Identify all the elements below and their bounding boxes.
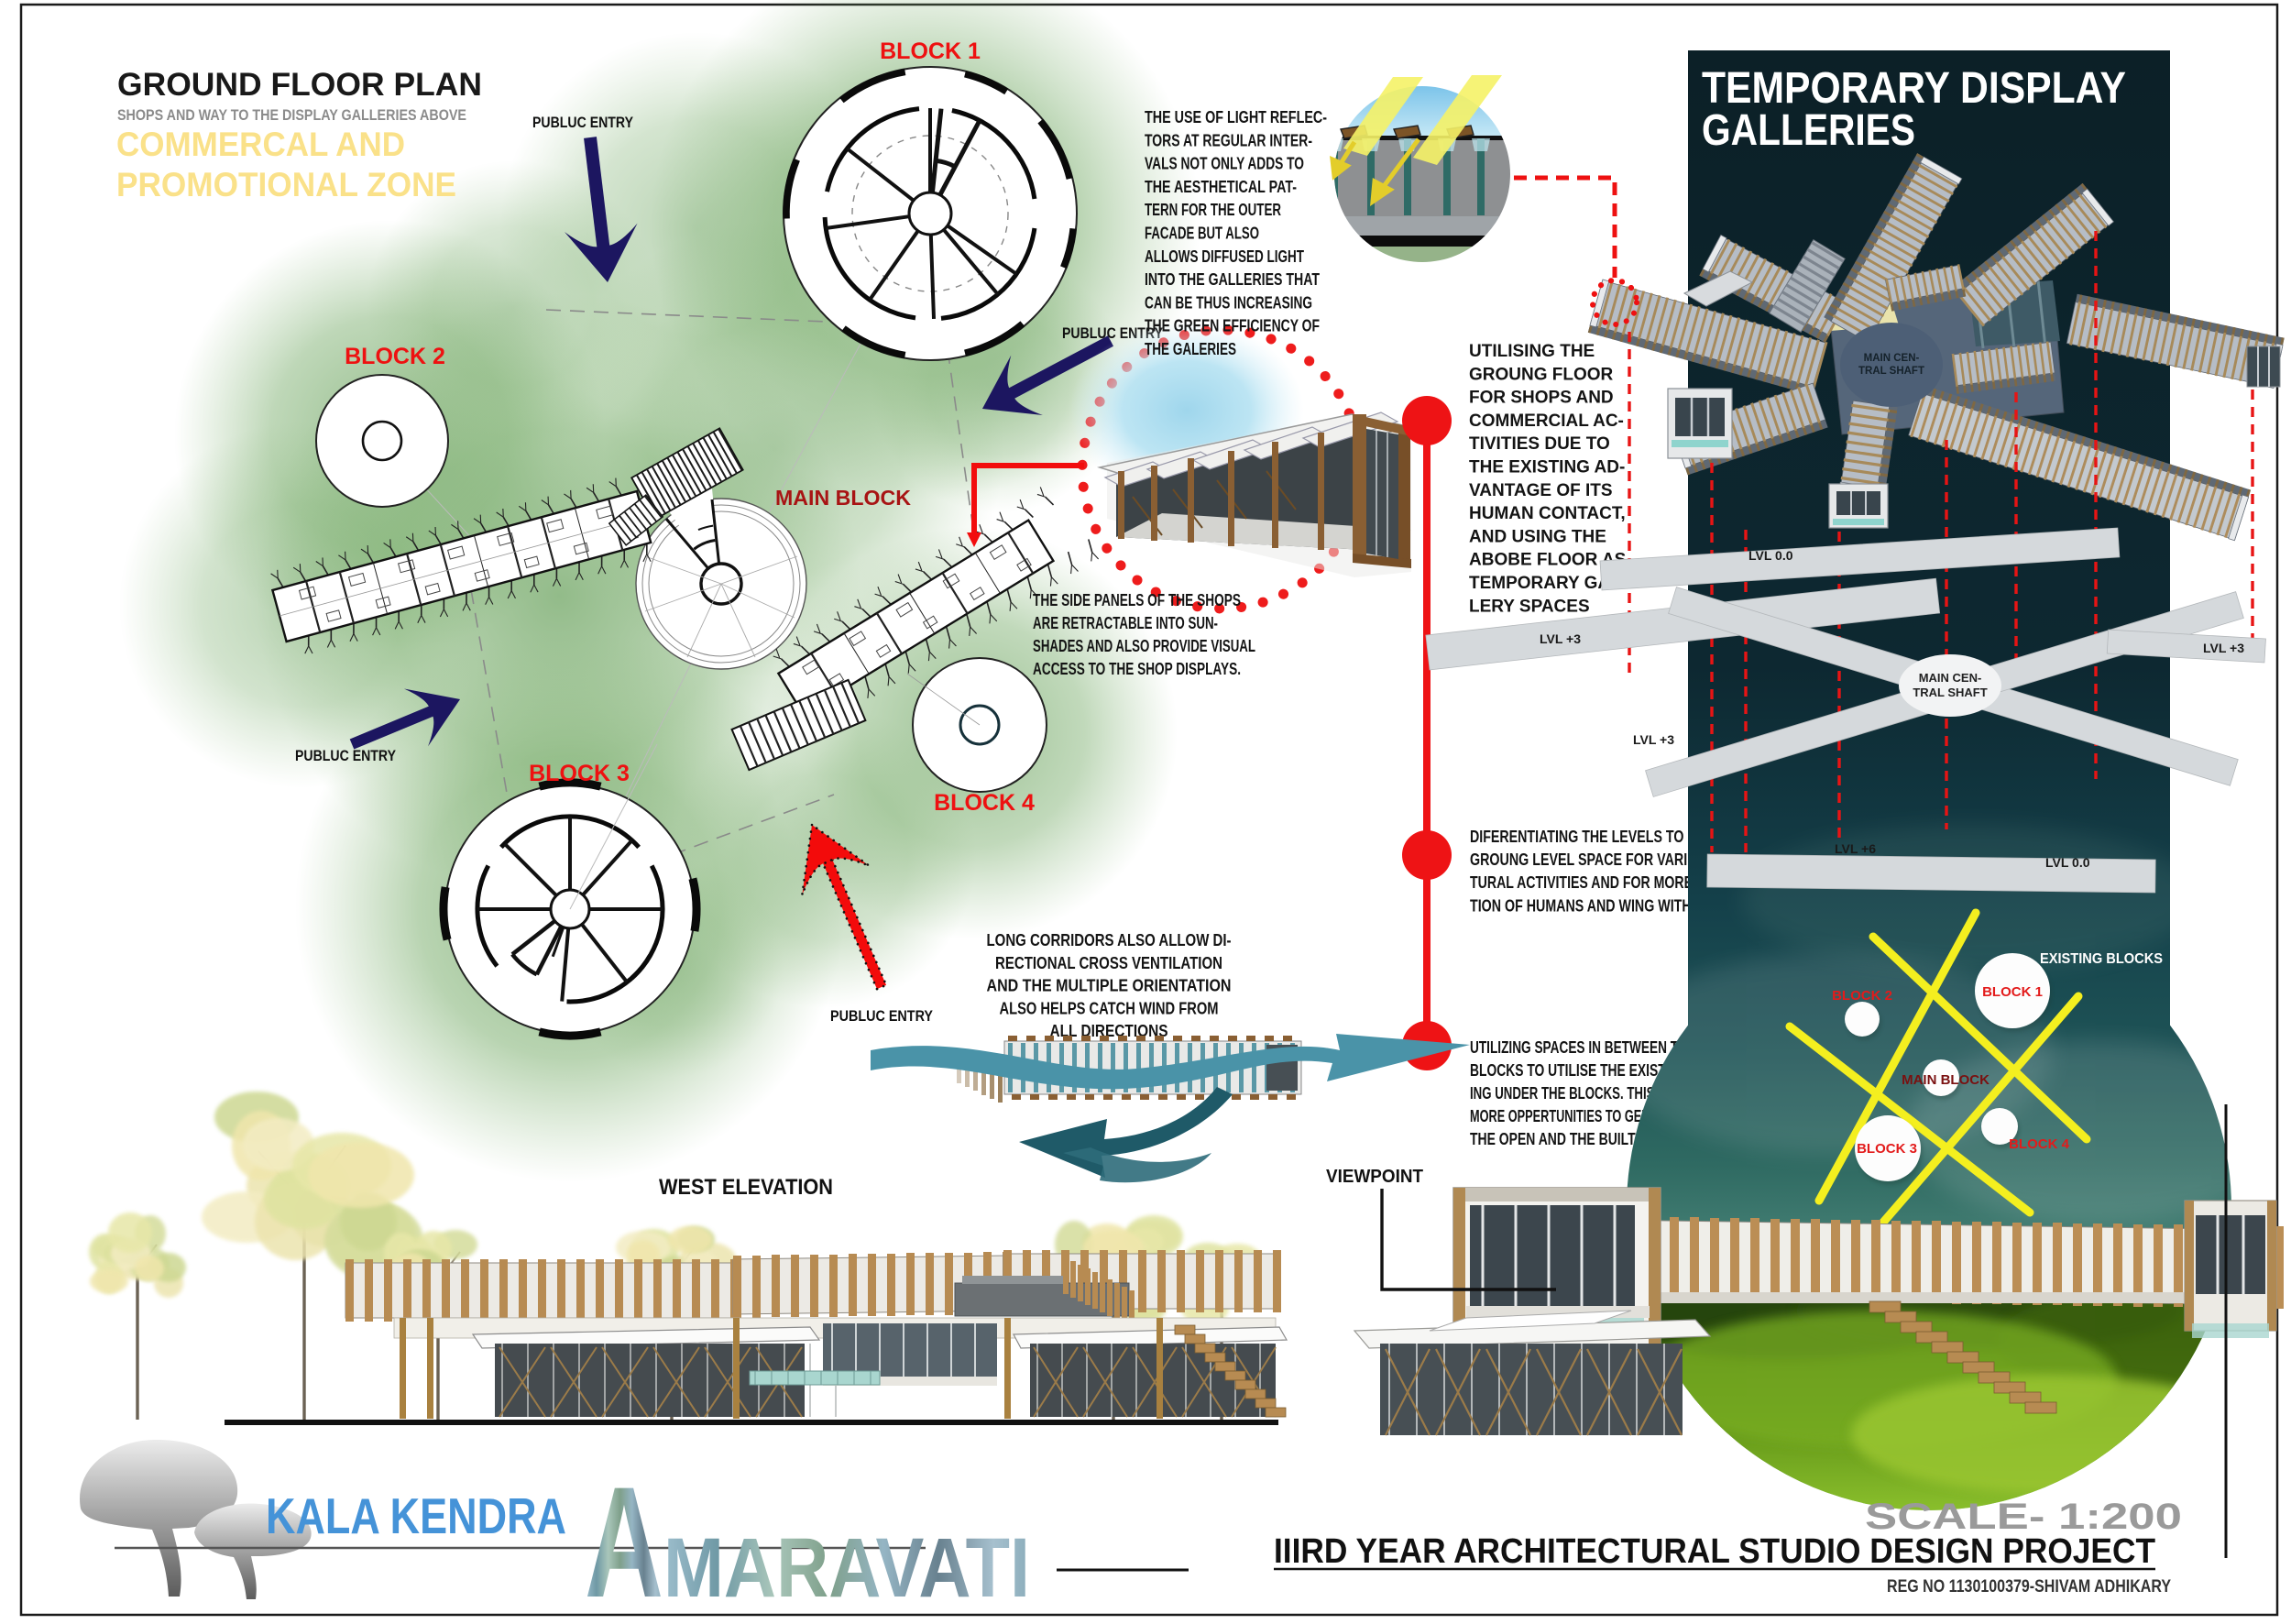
svg-text:BLOCK 3: BLOCK 3 — [529, 761, 630, 786]
svg-text:BLOCK 1: BLOCK 1 — [1982, 984, 2043, 1000]
svg-text:GALLERIES: GALLERIES — [1702, 106, 1915, 155]
svg-text:BLOCK 2: BLOCK 2 — [1832, 988, 1892, 1004]
svg-text:LVL +3: LVL +3 — [2203, 641, 2244, 655]
svg-text:LVL 0.0: LVL 0.0 — [2045, 855, 2090, 870]
svg-text:COMMERCAL AND: COMMERCAL AND — [116, 126, 405, 163]
svg-text:BLOCK 2: BLOCK 2 — [345, 344, 445, 369]
svg-text:GROUND FLOOR PLAN: GROUND FLOOR PLAN — [117, 67, 482, 103]
svg-text:BLOCK 4: BLOCK 4 — [2009, 1136, 2069, 1152]
svg-text:LVL +3: LVL +3 — [1540, 631, 1581, 646]
svg-text:LVL 0.0: LVL 0.0 — [1748, 548, 1793, 563]
svg-text:BLOCK 1: BLOCK 1 — [880, 38, 981, 64]
svg-text:PUBLUC ENTRY: PUBLUC ENTRY — [830, 1007, 934, 1025]
svg-text:KALA KENDRA: KALA KENDRA — [266, 1487, 566, 1544]
svg-text:SHOPS AND WAY TO THE DISPLAY G: SHOPS AND WAY TO THE DISPLAY GALLERIES A… — [117, 106, 466, 124]
svg-text:MARAVATI: MARAVATI — [663, 1521, 1030, 1615]
svg-text:BLOCK 4: BLOCK 4 — [934, 790, 1035, 816]
svg-text:PUBLUC ENTRY: PUBLUC ENTRY — [532, 114, 634, 131]
svg-text:LVL +6: LVL +6 — [1835, 841, 1876, 856]
svg-text:EXISTING BLOCKS: EXISTING BLOCKS — [2040, 951, 2163, 967]
svg-text:WEST ELEVATION: WEST ELEVATION — [659, 1175, 833, 1200]
svg-text:PUBLUC ENTRY: PUBLUC ENTRY — [295, 747, 397, 764]
svg-text:A: A — [585, 1454, 663, 1619]
svg-text:MAIN BLOCK: MAIN BLOCK — [775, 486, 911, 510]
svg-text:BLOCK 3: BLOCK 3 — [1857, 1141, 1917, 1157]
svg-text:SCALE- 1:200: SCALE- 1:200 — [1865, 1497, 2182, 1537]
svg-text:REG NO 1130100379-SHIVAM ADHI: REG NO 1130100379-SHIVAM ADHIKARY — [1887, 1577, 2171, 1597]
svg-text:TRAL SHAFT: TRAL SHAFT — [1858, 366, 1924, 377]
svg-text:MAIN CEN-: MAIN CEN- — [1864, 353, 1920, 364]
svg-text:VIEWPOINT: VIEWPOINT — [1326, 1167, 1423, 1187]
svg-text:MAIN CEN-: MAIN CEN- — [1919, 671, 1982, 685]
svg-text:MAIN BLOCK: MAIN BLOCK — [1902, 1072, 1990, 1088]
svg-text:IIIRD YEAR ARCHITECTURAL STUDI: IIIRD YEAR ARCHITECTURAL STUDIO DESIGN P… — [1274, 1532, 2155, 1571]
svg-text:LVL +3: LVL +3 — [1633, 732, 1674, 747]
svg-text:PROMOTIONAL ZONE: PROMOTIONAL ZONE — [116, 166, 456, 203]
svg-text:TRAL SHAFT: TRAL SHAFT — [1913, 686, 1987, 699]
